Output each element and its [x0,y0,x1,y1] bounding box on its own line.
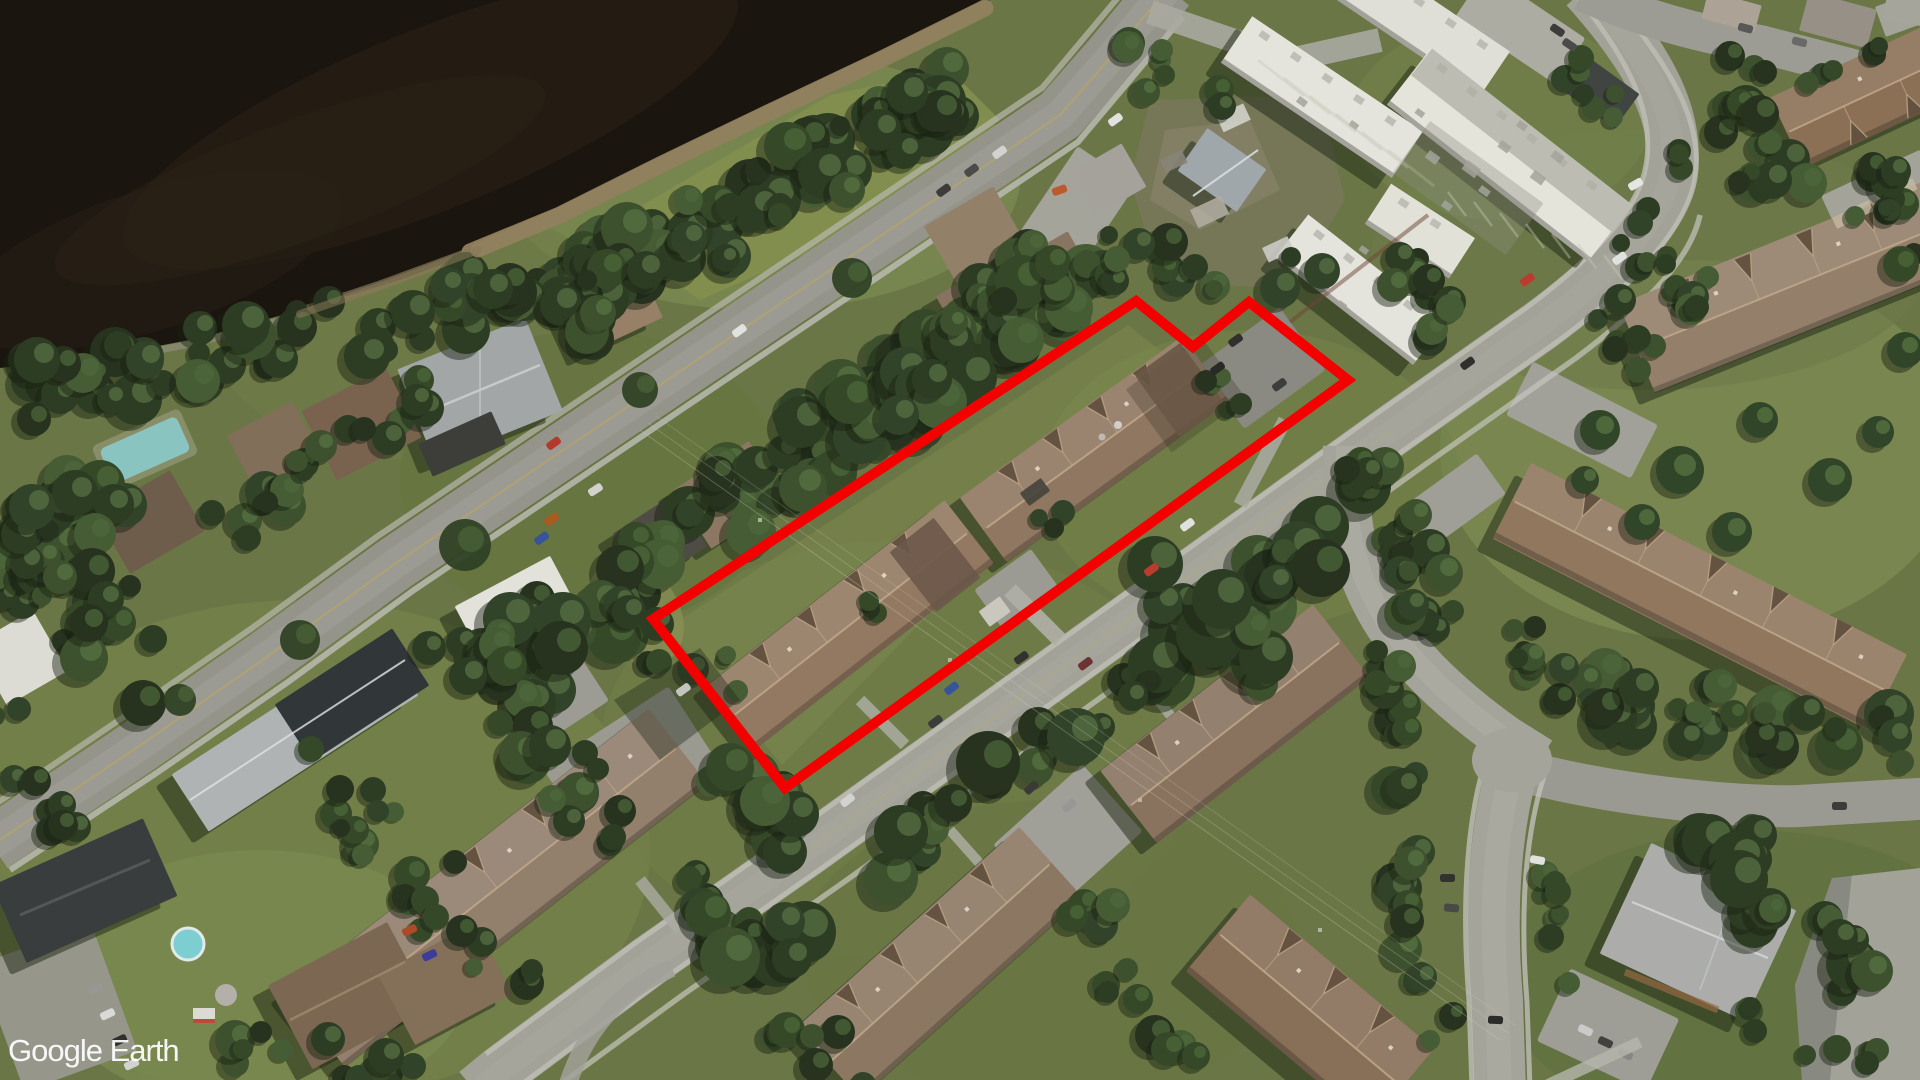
svg-text:Google Earth: Google Earth [8,1033,179,1068]
